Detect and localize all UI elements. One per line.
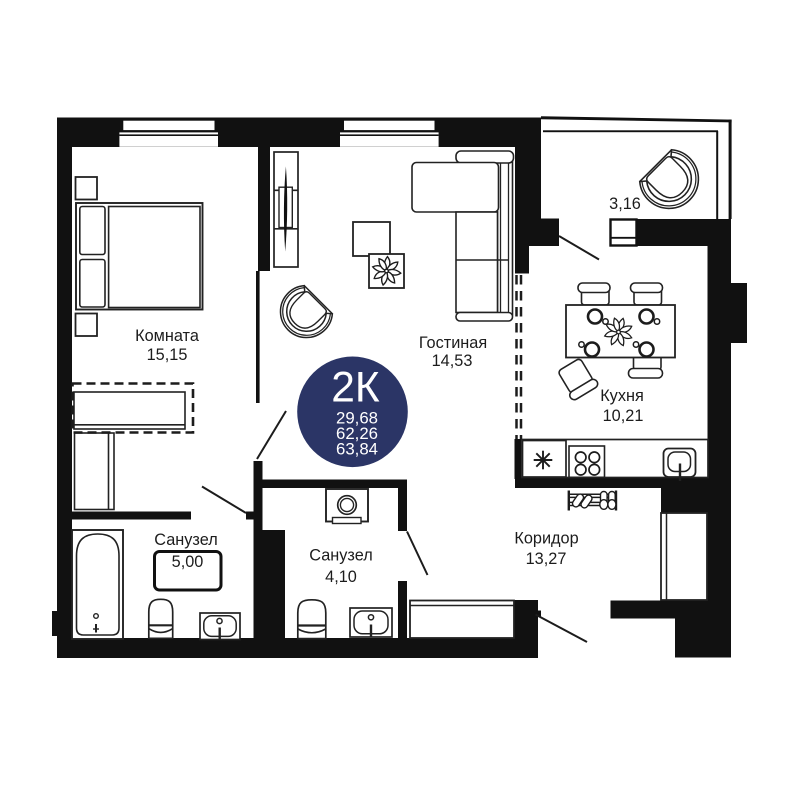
svg-text:63,84: 63,84 [336,440,378,459]
svg-text:13,27: 13,27 [526,550,567,568]
svg-text:3,16: 3,16 [609,195,641,213]
svg-text:Коридор: Коридор [514,530,578,548]
svg-text:Кухня: Кухня [600,387,644,405]
svg-text:5,00: 5,00 [172,553,204,571]
svg-text:Санузел: Санузел [154,531,217,549]
svg-text:15,15: 15,15 [147,346,188,364]
svg-text:Комната: Комната [135,327,200,345]
svg-text:Гостиная: Гостиная [419,334,487,352]
svg-text:14,53: 14,53 [432,352,473,370]
svg-text:10,21: 10,21 [603,407,644,425]
svg-text:2К: 2К [331,365,380,412]
svg-text:Санузел: Санузел [309,547,372,565]
svg-text:4,10: 4,10 [325,568,357,586]
